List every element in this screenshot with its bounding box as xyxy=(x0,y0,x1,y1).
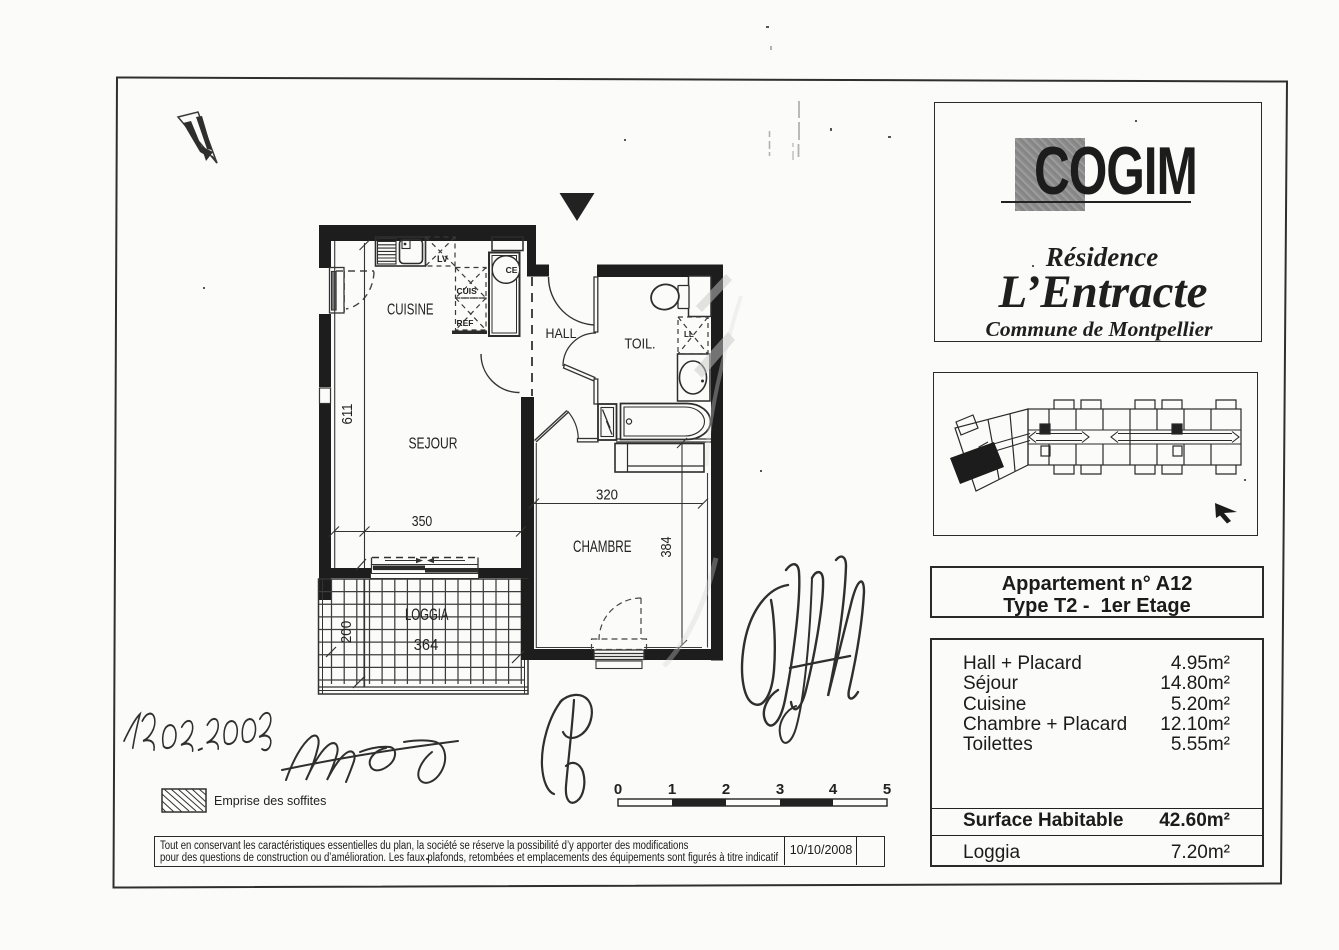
svg-text:320: 320 xyxy=(596,488,618,504)
svg-text:CE: CE xyxy=(506,265,518,275)
svg-text:4: 4 xyxy=(829,781,838,798)
svg-text:LL: LL xyxy=(684,330,694,339)
svg-text:LOGGIA: LOGGIA xyxy=(405,605,449,624)
svg-text:CHAMBRE: CHAMBRE xyxy=(573,537,632,556)
svg-text:SEJOUR: SEJOUR xyxy=(409,436,458,453)
svg-text:CUIS: CUIS xyxy=(457,286,478,296)
svg-text:5: 5 xyxy=(883,781,891,798)
svg-text:2: 2 xyxy=(722,781,730,798)
svg-text:CUISINE: CUISINE xyxy=(387,302,434,319)
svg-text:3: 3 xyxy=(776,781,784,798)
svg-text:TOIL.: TOIL. xyxy=(625,336,656,353)
svg-text:364: 364 xyxy=(414,637,439,654)
svg-text:611: 611 xyxy=(339,404,356,425)
svg-text:350: 350 xyxy=(412,514,433,530)
svg-text:REF: REF xyxy=(457,318,474,328)
svg-text:384: 384 xyxy=(658,537,675,558)
svg-text:0: 0 xyxy=(614,781,622,798)
svg-text:HALL: HALL xyxy=(546,326,577,341)
svg-text:1: 1 xyxy=(668,781,676,798)
svg-text:Emprise des soffites: Emprise des soffites xyxy=(214,794,326,808)
svg-text:LV: LV xyxy=(437,254,448,264)
svg-text:200: 200 xyxy=(339,621,355,644)
